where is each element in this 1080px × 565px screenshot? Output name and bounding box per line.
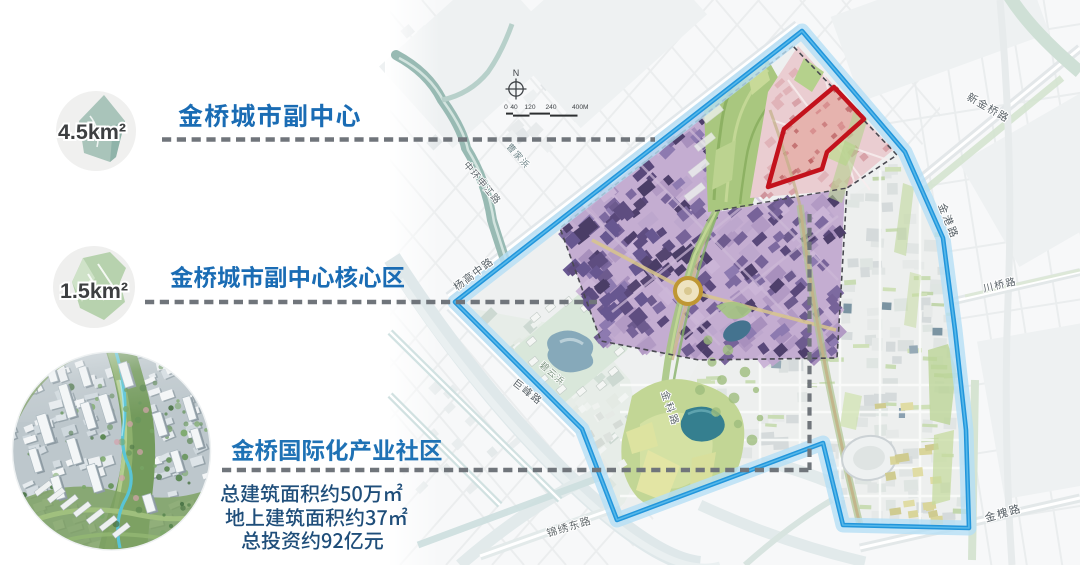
svg-text:40: 40 <box>510 104 518 111</box>
svg-text:120: 120 <box>524 104 535 111</box>
svg-text:1.5km²: 1.5km² <box>60 279 128 303</box>
svg-text:N: N <box>513 68 520 78</box>
svg-text:0: 0 <box>504 104 508 111</box>
svg-text:400M: 400M <box>572 104 589 111</box>
svg-text:240: 240 <box>545 104 556 111</box>
svg-text:4.5km²: 4.5km² <box>58 120 126 144</box>
